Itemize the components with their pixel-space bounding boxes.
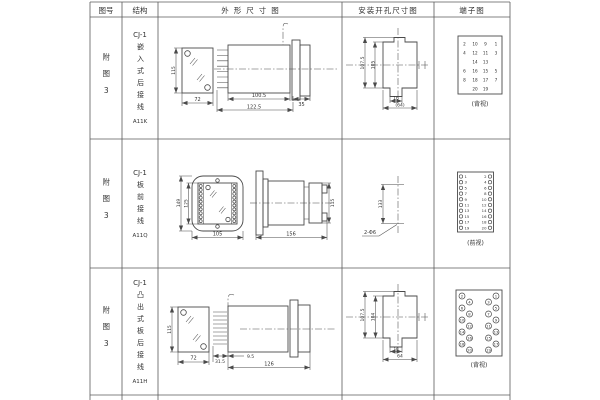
dim-height-inner: 104 [371, 313, 377, 322]
terminal-number: 11 [483, 51, 489, 56]
terminal-fins [213, 312, 227, 344]
dim-front-width: 72 [194, 97, 200, 103]
bolt-hole [216, 179, 220, 183]
terminal-number: 20 [467, 347, 472, 352]
hook-centerline [228, 294, 234, 307]
hatch-mark [219, 207, 226, 214]
terminal-number: 15 [465, 214, 470, 219]
terminal-number: 1 [465, 174, 468, 179]
terminal-number: 1 [495, 42, 498, 47]
dim-front-height-outer: 149 [176, 199, 182, 208]
terminal-number: 14 [482, 208, 487, 213]
terminal-view-label: (背视) [471, 361, 488, 369]
terminal-number: 8 [463, 78, 466, 83]
terminal-diagram-a11h: 2 4 6 8 10 12 14 16 18 20 1 3 5 7 9 11 1… [456, 290, 502, 369]
terminal-number: 13 [483, 60, 489, 65]
terminal-number: 19 [483, 87, 489, 92]
terminal-number: 12 [467, 323, 472, 328]
terminal-number: 17 [465, 220, 470, 225]
dim-side-length: 156 [286, 232, 296, 238]
screw-hole [206, 185, 210, 189]
terminal-number: 17 [483, 78, 489, 83]
terminal-number: 12 [472, 51, 478, 56]
dim-slot-width: 16 [393, 96, 399, 102]
terminal-number: 9 [465, 197, 468, 202]
terminal-strip-dots [199, 185, 236, 223]
screw-hole [226, 217, 230, 221]
dim-front-height: 115 [167, 325, 173, 334]
terminal-number: 15 [486, 335, 491, 340]
dim-height-inner: 105 [371, 61, 377, 70]
dim-body-length: 100.5 [252, 93, 266, 99]
terminal-number: 18 [472, 78, 478, 83]
terminal-view-label: (前视) [467, 239, 484, 247]
terminal-number: 10 [460, 317, 465, 322]
hook-centerline [283, 23, 288, 45]
terminal-number: 16 [482, 214, 487, 219]
terminal-number: 11 [465, 203, 470, 208]
terminal-number: 9 [484, 42, 487, 47]
mounting-drawing-a11q: 133 2-Φ6 [362, 176, 404, 236]
outline-drawing-a11h: 115 72 31.5 9.5 126 [167, 294, 336, 370]
terminal-number: 14 [472, 60, 478, 65]
dim-height-outer: 107.5 [360, 56, 366, 69]
terminal-number: 20 [482, 225, 487, 230]
terminal-number: 19 [486, 347, 491, 352]
dim-front-height: 115 [171, 66, 177, 75]
dim-opening-width: 64 [397, 354, 403, 360]
dim-hole-pitch: 133 [378, 200, 384, 209]
terminal-number: 6 [463, 69, 466, 74]
drawings-svg: 115 72 100.5 35 122.5 107.5 105 16 [0, 0, 600, 400]
terminal-number: 3 [465, 180, 468, 185]
terminal-number: 5 [495, 69, 498, 74]
dim-body-length: 126 [264, 362, 274, 368]
outline-drawing-a11q: 149 125 105 156 115 [176, 171, 336, 240]
terminal-number: 18 [482, 220, 487, 225]
terminal-number: 4 [484, 180, 487, 185]
screw-hole [185, 51, 191, 57]
hatch-mark [210, 191, 217, 198]
terminal-diagram-a11k: 2 4 6 8 10 12 14 16 18 20 9 11 13 15 17 … [458, 36, 502, 108]
screw-hole [205, 85, 211, 91]
dim-side-height: 115 [330, 199, 336, 208]
terminal-number: 16 [467, 335, 472, 340]
terminal-number: 17 [494, 341, 499, 346]
hatch-mark [190, 58, 198, 66]
terminal-diagram-a11q: 1 3 5 7 9 11 13 15 17 19 2 4 6 8 10 12 1… [458, 172, 494, 247]
terminal-number: 7 [465, 191, 468, 196]
hatch-mark [193, 334, 201, 342]
terminal-number: 12 [482, 203, 487, 208]
terminal-number: 10 [472, 42, 478, 47]
screw-hole [201, 344, 207, 350]
dim-offset: 9.5 [247, 354, 254, 360]
terminal-number: 7 [495, 78, 498, 83]
terminal-number: 13 [465, 208, 470, 213]
dim-front-height-inner: 125 [184, 199, 190, 208]
mounting-drawing-a11k: 107.5 105 16 (64) [346, 28, 430, 110]
terminal-view-label: (背视) [472, 100, 489, 108]
dim-total-length: 122.5 [247, 105, 261, 111]
dim-front-width: 105 [213, 232, 223, 238]
terminal-number: 4 [463, 51, 466, 56]
dim-height-outer: 107.5 [360, 308, 366, 321]
terminal-number: 5 [465, 185, 468, 190]
terminal-number: 18 [460, 341, 465, 346]
hole-spec-label: 2-Φ6 [364, 230, 376, 236]
terminal-number: 2 [484, 174, 487, 179]
dim-terminal-depth: 31.5 [215, 359, 225, 365]
mounting-drawing-a11h: 107.5 104 16 64 [346, 284, 430, 362]
terminal-number: 3 [495, 51, 498, 56]
terminal-number: 14 [460, 329, 465, 334]
terminal-number: 10 [482, 197, 487, 202]
terminal-number: 16 [472, 69, 478, 74]
terminal-number: 11 [486, 323, 491, 328]
bolt-hole [216, 225, 220, 229]
screw-hole [181, 310, 187, 316]
terminal-number: 19 [465, 225, 470, 230]
dim-opening-width: (64) [395, 103, 404, 109]
dim-flange-depth: 35 [298, 102, 304, 108]
hatch-mark [186, 316, 194, 324]
terminal-number: 15 [483, 69, 489, 74]
outline-drawing-a11k: 115 72 100.5 35 122.5 [171, 23, 338, 112]
dim-front-width: 72 [190, 356, 196, 362]
terminal-number: 20 [472, 87, 478, 92]
hatch-mark [197, 74, 205, 82]
terminal-number: 6 [484, 185, 487, 190]
terminal-number: 13 [494, 329, 499, 334]
terminal-number: 2 [463, 42, 466, 47]
dim-slot-width: 16 [394, 346, 399, 351]
terminal-number: 8 [484, 191, 487, 196]
